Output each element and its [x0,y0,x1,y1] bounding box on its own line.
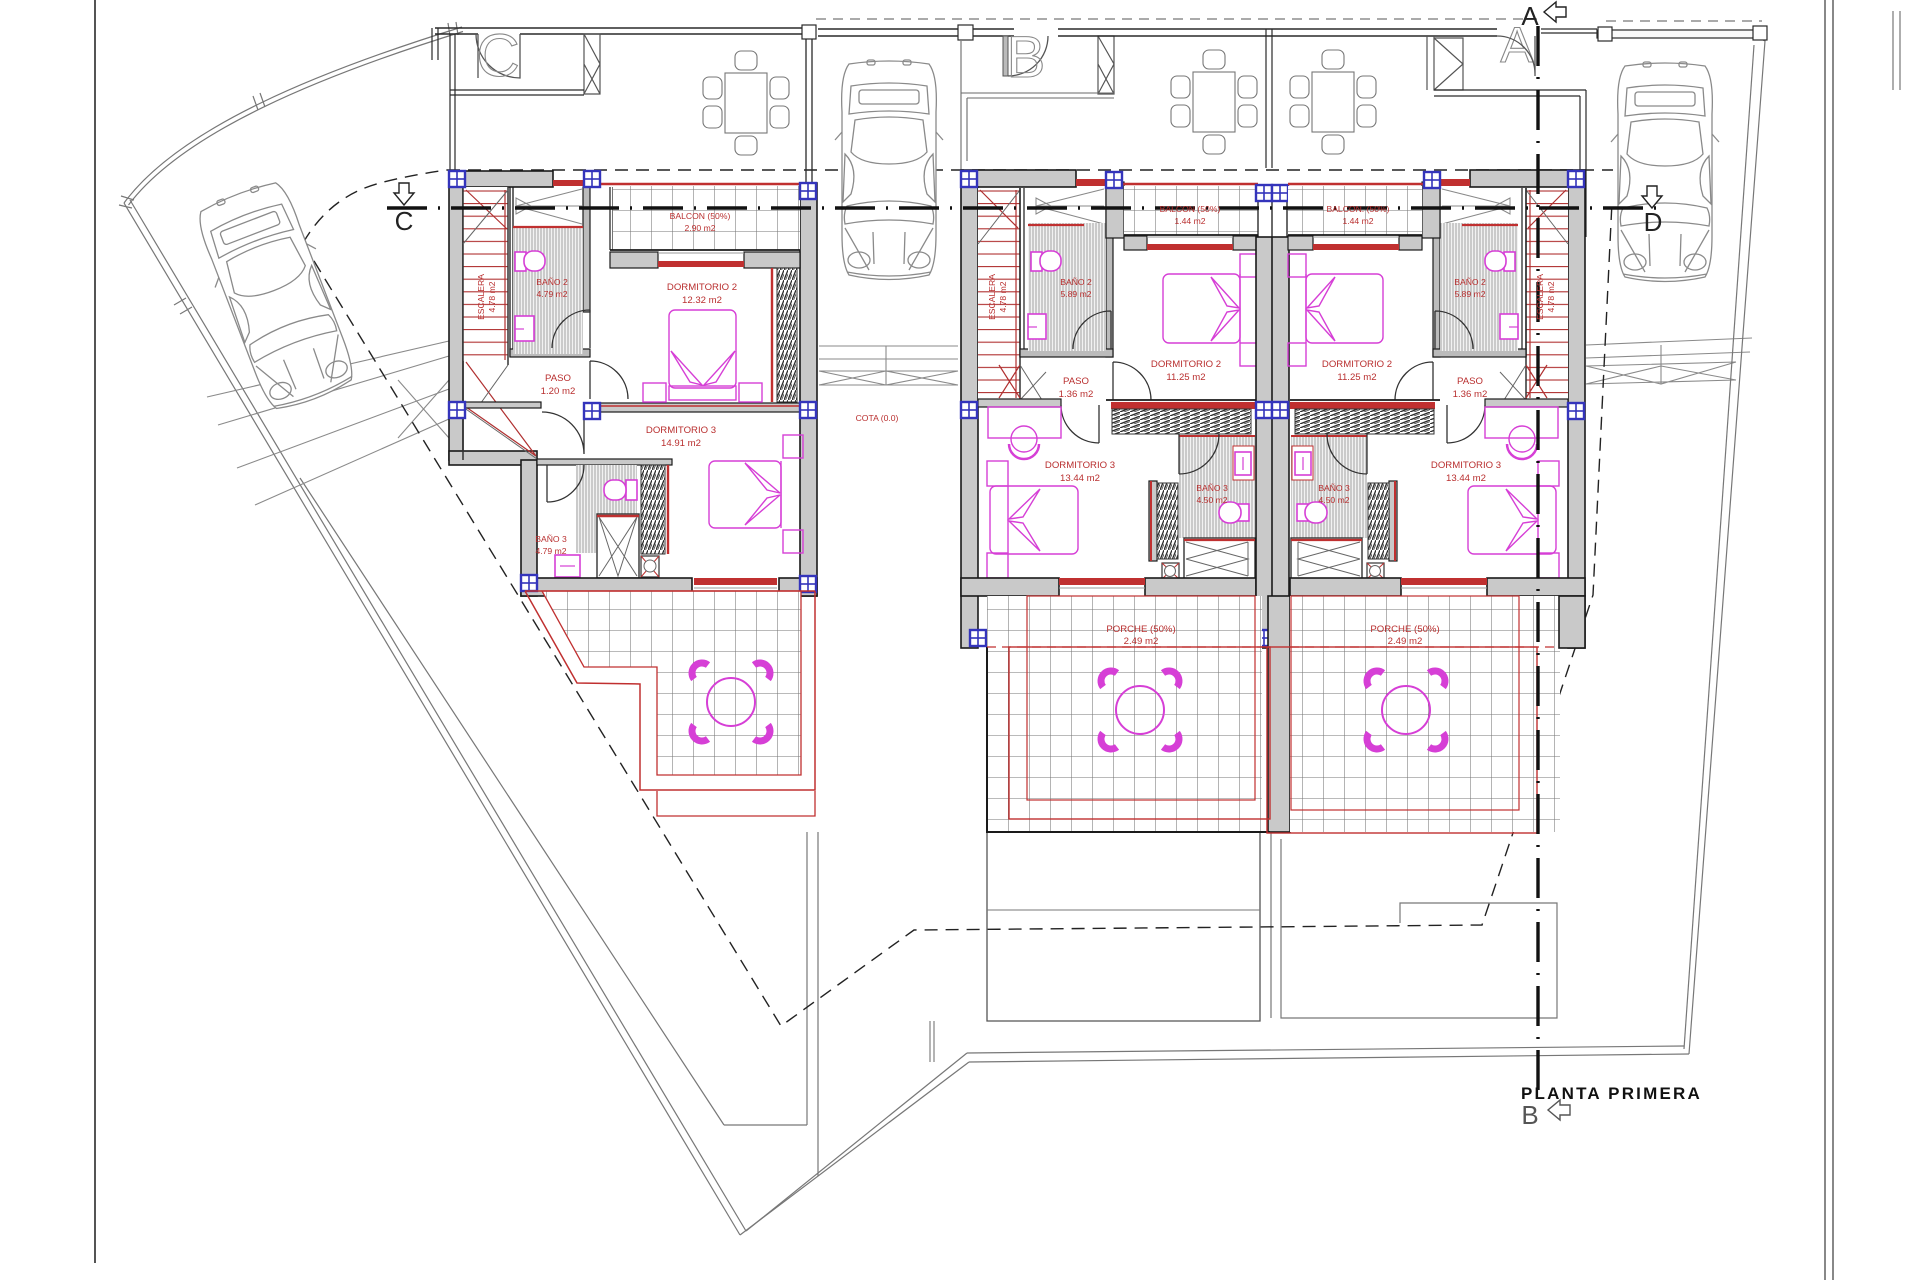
svg-text:BAÑO 3: BAÑO 3 [1196,483,1228,493]
svg-text:2.49 m2: 2.49 m2 [1388,636,1423,647]
svg-text:COTA (0.0): COTA (0.0) [856,413,899,423]
svg-text:4.50 m2: 4.50 m2 [1196,495,1227,505]
svg-text:11.25 m2: 11.25 m2 [1337,372,1376,383]
svg-text:5.89 m2: 5.89 m2 [1454,289,1485,299]
svg-text:BAÑO 2: BAÑO 2 [1454,277,1486,287]
svg-text:4.79 m2: 4.79 m2 [536,289,567,299]
svg-text:1.44 m2: 1.44 m2 [1342,216,1373,226]
svg-text:BALCON. (50%): BALCON. (50%) [1326,204,1389,214]
svg-text:14.91 m2: 14.91 m2 [661,438,701,449]
svg-text:D: D [1644,207,1663,237]
svg-text:A: A [1521,1,1539,31]
svg-text:DORMITORIO 2: DORMITORIO 2 [1151,359,1221,370]
svg-text:PASO: PASO [1063,376,1089,387]
svg-text:4.50 m2: 4.50 m2 [1318,495,1349,505]
svg-text:PASO: PASO [545,373,571,384]
svg-text:1.44 m2: 1.44 m2 [1174,216,1205,226]
svg-text:1.20 m2: 1.20 m2 [541,386,576,397]
svg-text:5.89 m2: 5.89 m2 [1060,289,1091,299]
svg-text:DORMITORIO 3: DORMITORIO 3 [646,425,716,436]
svg-text:4.79 m2: 4.79 m2 [535,546,566,556]
svg-text:B: B [1007,25,1046,90]
svg-text:ESCALERA: ESCALERA [476,274,486,320]
svg-text:ESCALERA: ESCALERA [987,274,997,320]
svg-text:13.44 m2: 13.44 m2 [1446,473,1486,484]
svg-text:DORMITORIO 2: DORMITORIO 2 [1322,359,1392,370]
svg-text:1.36 m2: 1.36 m2 [1059,389,1094,400]
svg-text:4.78 m2: 4.78 m2 [998,281,1008,312]
svg-text:C: C [395,206,414,236]
svg-text:DORMITORIO 3: DORMITORIO 3 [1431,460,1501,471]
svg-text:PORCHE (50%): PORCHE (50%) [1106,624,1175,635]
svg-text:4.78 m2: 4.78 m2 [487,281,497,312]
svg-text:PLANTA PRIMERA: PLANTA PRIMERA [1521,1084,1702,1103]
svg-text:4.78 m2: 4.78 m2 [1546,281,1556,312]
svg-text:BAÑO 2: BAÑO 2 [536,277,568,287]
svg-text:ESCALERA: ESCALERA [1535,274,1545,320]
svg-text:BAÑO 3: BAÑO 3 [1318,483,1350,493]
svg-text:B: B [1521,1100,1538,1130]
svg-text:DORMITORIO 2: DORMITORIO 2 [667,282,737,293]
svg-text:BALCON (50%): BALCON (50%) [670,211,731,221]
svg-text:BALCON (50%): BALCON (50%) [1160,204,1221,214]
svg-text:BAÑO 3: BAÑO 3 [535,534,567,544]
svg-text:PASO: PASO [1457,376,1483,387]
svg-text:BAÑO 2: BAÑO 2 [1060,277,1092,287]
svg-text:DORMITORIO 3: DORMITORIO 3 [1045,460,1115,471]
svg-text:12.32 m2: 12.32 m2 [682,295,722,306]
svg-text:C: C [476,22,519,89]
svg-text:2.90 m2: 2.90 m2 [684,223,715,233]
svg-text:11.25 m2: 11.25 m2 [1166,372,1205,383]
svg-text:2.49 m2: 2.49 m2 [1124,636,1159,647]
svg-text:PORCHE (50%): PORCHE (50%) [1370,624,1439,635]
svg-text:1.36 m2: 1.36 m2 [1453,389,1488,400]
svg-text:13.44 m2: 13.44 m2 [1060,473,1100,484]
